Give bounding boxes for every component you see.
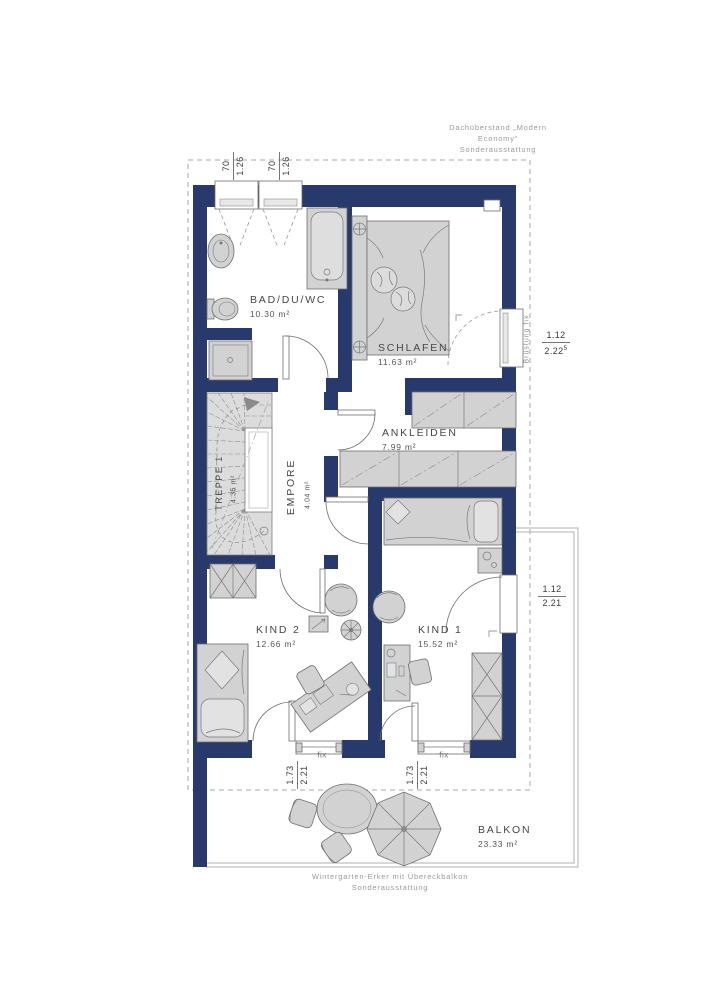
room-label-treppe: TREPPE 1: [214, 455, 224, 511]
fix-label-1: fix: [317, 751, 327, 760]
kind2-side-table-icon: [309, 616, 328, 632]
shower-icon: [209, 341, 252, 380]
roof-overhang-note: Dachüberstand „Modern Economy“ Sonderaus…: [433, 122, 563, 155]
kind1-chair-icon: [408, 658, 433, 686]
balcony-chair-1-icon: [288, 798, 319, 829]
roof-note-line1: Dachüberstand „Modern: [433, 122, 563, 133]
dim-roof-window-2: 70 1.26: [267, 152, 291, 180]
roof-note-line2: Economy“: [433, 133, 563, 144]
dim-fix-window-1: 1.73 2.21: [285, 761, 309, 789]
room-area-treppe: 4.35 m²: [231, 475, 238, 503]
kind1-wardrobe-icon: [472, 653, 502, 740]
room-label-bad: BAD/DU/WC 10.30 m²: [250, 294, 326, 319]
kind2-stool-icon: [341, 620, 361, 640]
bruestung-fix-label: Brüstung fix: [524, 315, 531, 364]
fix-label-2: fix: [439, 751, 449, 760]
kind1-balcony-door-bottom: [380, 703, 418, 741]
dim-window-right-upper: 1.12 2.225: [542, 330, 570, 356]
parasol-icon: [367, 792, 441, 866]
room-label-kind2: KIND 2 12.66 m²: [256, 624, 301, 649]
room-label-balkon: BALKON 23.33 m²: [478, 824, 531, 849]
ankleiden-wardrobe-top: [412, 392, 516, 428]
fraction-bar: [538, 596, 566, 597]
bathtub-icon: [307, 208, 347, 289]
roof-note-line3: Sonderausstattung: [433, 144, 563, 155]
kind2-wardrobe-icon: [210, 564, 256, 598]
fraction-bar: [297, 761, 298, 789]
balcony-note-line1: Wintergarten-Erker mit Übereckbalkon: [295, 871, 485, 882]
fraction-bar: [417, 761, 418, 789]
toilet-icon: [207, 298, 238, 320]
room-label-schlafen: SCHLAFEN 11.63 m²: [378, 342, 448, 367]
fraction-bar: [233, 152, 234, 180]
downpipe-notch: [484, 200, 500, 211]
kind2-bed-icon: [197, 644, 248, 742]
balcony-note: Wintergarten-Erker mit Übereckbalkon Son…: [295, 871, 485, 893]
kind2-armchair-icon: [325, 584, 357, 616]
washbasin-icon: [208, 234, 234, 268]
room-label-kind1: KIND 1 15.52 m²: [418, 624, 463, 649]
fraction-bar: [279, 152, 280, 180]
ankleiden-wardrobe-bottom: [340, 451, 516, 487]
floor-plan-canvas: Dachüberstand „Modern Economy“ Sonderaus…: [0, 0, 707, 1000]
kind2-balcony-door: [253, 701, 295, 741]
balcony-note-line2: Sonderausstattung: [295, 882, 485, 893]
dim-roof-window-1: 70 1.26: [221, 152, 245, 180]
room-label-empore: EMPORE: [285, 459, 297, 515]
kind2-door: [280, 569, 325, 613]
kind1-door: [326, 497, 368, 544]
room-label-ankleiden: ANKLEIDEN 7.99 m²: [382, 427, 458, 452]
balcony-chair-2-icon: [319, 830, 353, 864]
roof-window-2: [259, 181, 302, 248]
floorplan-drawing: [0, 0, 707, 1000]
dim-window-right-lower: 1.12 2.21: [538, 584, 566, 608]
bad-door: [283, 336, 328, 379]
ankleiden-door: [338, 410, 375, 450]
double-bed-icon: [352, 216, 449, 360]
dim-fix-window-2: 1.73 2.21: [405, 761, 429, 789]
kind1-bed-icon: [384, 498, 502, 545]
kind1-nightstand-icon: [478, 548, 502, 573]
room-area-empore: 4.04 m²: [305, 481, 312, 509]
kind1-armchair-icon: [373, 591, 405, 623]
fraction-bar: [542, 342, 570, 343]
schlafen-window: [448, 309, 523, 367]
kind1-desk-icon: [384, 645, 410, 701]
